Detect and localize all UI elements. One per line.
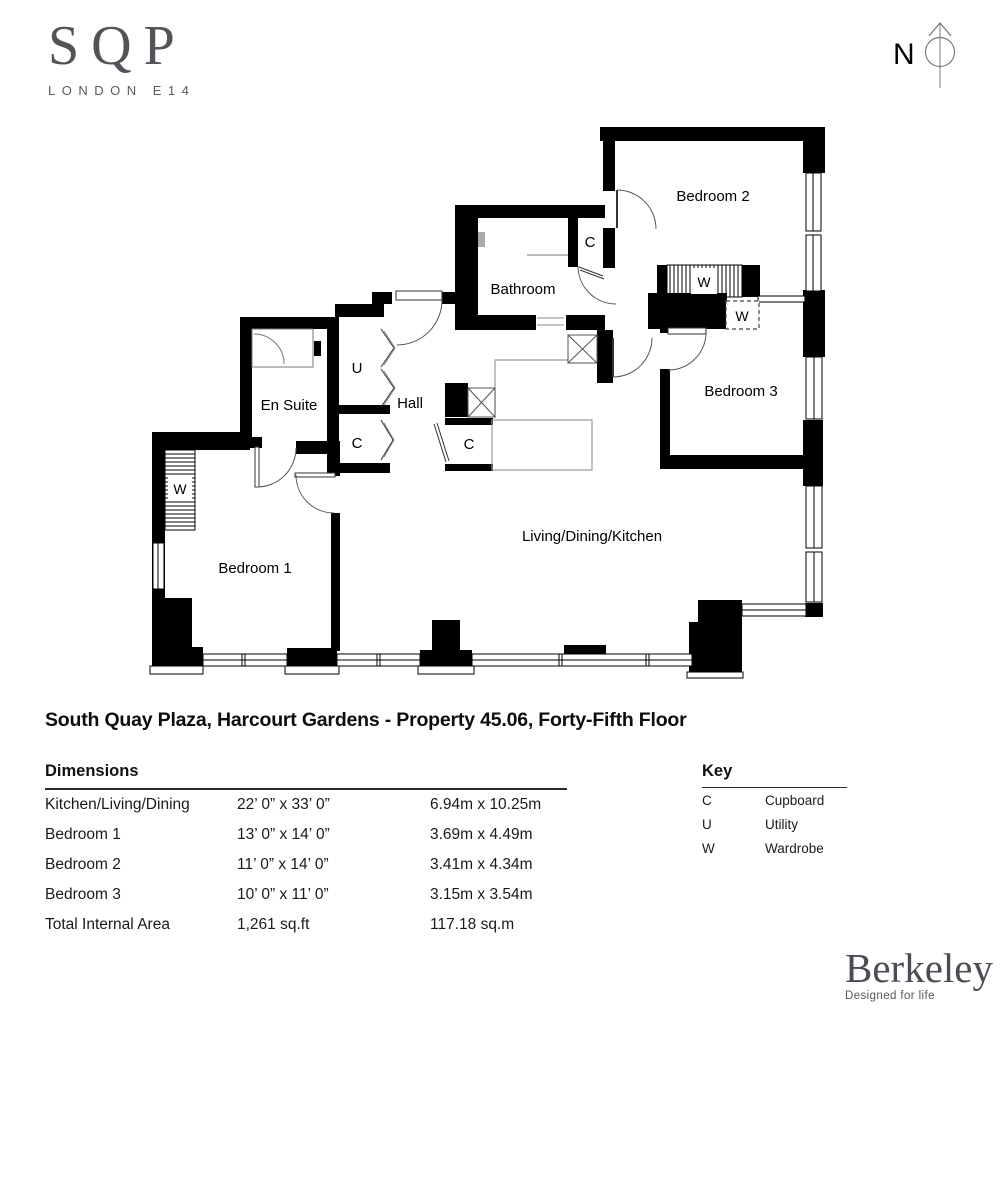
appliance-box [468,335,597,417]
dim-metric: 3.15m x 3.54m [430,886,567,904]
table-row: Bedroom 3 10’ 0” x 11’ 0” 3.15m x 3.54m [45,880,567,910]
cupboard-label: C [585,234,596,251]
wardrobe-bedroom3: W [726,301,759,329]
room-label-hall: Hall [397,395,423,412]
bathroom-niche [478,232,485,247]
key-table: Key C Cupboard U Utility W Wardrobe [702,762,847,860]
room-label-living-dining-kitchen: Living/Dining/Kitchen [522,528,662,545]
room-label-bedroom-2: Bedroom 2 [676,188,749,205]
dim-metric: 6.94m x 10.25m [430,796,567,814]
shower-enclosure [252,329,313,367]
key-meaning: Wardrobe [765,841,847,856]
table-row: Bedroom 2 11’ 0” x 14’ 0” 3.41m x 4.34m [45,850,567,880]
thin-walls [758,296,805,302]
wardrobe-bedroom2: W [667,265,742,297]
dim-imperial: 13’ 0” x 14’ 0” [237,826,430,844]
utility-label: U [352,360,363,377]
wardrobe-label: W [697,274,711,290]
developer-name: Berkeley [845,948,993,989]
table-row: Bedroom 1 13’ 0” x 14’ 0” 3.69m x 4.49m [45,820,567,850]
key-symbol: C [702,793,765,808]
page-title: South Quay Plaza, Harcourt Gardens - Pro… [45,709,965,732]
berkeley-logo: Berkeley Designed for life [845,948,993,1002]
north-arrow-icon: N [893,23,955,88]
room-label-bedroom-3: Bedroom 3 [704,383,777,400]
dimensions-table: Dimensions Kitchen/Living/Dining 22’ 0” … [45,762,567,940]
wardrobe-label: W [735,308,749,324]
dim-imperial: 11’ 0” x 14’ 0” [237,856,430,874]
list-item: W Wardrobe [702,836,847,860]
dim-label: Bedroom 3 [45,886,237,904]
dim-imperial: 1,261 sq.ft [237,916,430,934]
dim-label: Kitchen/Living/Dining [45,796,237,814]
table-row: Total Internal Area 1,261 sq.ft 117.18 s… [45,910,567,940]
key-meaning: Cupboard [765,793,847,808]
room-labels: Bedroom 2 Bathroom Bedroom 3 En Suite Ha… [218,188,777,577]
dim-metric: 117.18 sq.m [430,916,567,934]
wardrobe-label: W [173,481,187,497]
developer-tagline: Designed for life [845,990,993,1002]
dim-imperial: 22’ 0” x 33’ 0” [237,796,430,814]
dimensions-heading: Dimensions [45,762,567,790]
room-label-bedroom-1: Bedroom 1 [218,560,291,577]
list-item: U Utility [702,812,847,836]
dim-imperial: 10’ 0” x 11’ 0” [237,886,430,904]
key-symbol: U [702,817,765,832]
room-label-bathroom: Bathroom [490,281,555,298]
wardrobe-bedroom1: W [165,449,195,530]
list-item: C Cupboard [702,788,847,812]
floorplan-page: SQP LONDON E14 N [0,0,1000,1180]
kitchen-counter [492,360,592,470]
dim-label: Total Internal Area [45,916,237,934]
table-row: Kitchen/Living/Dining 22’ 0” x 33’ 0” 6.… [45,790,567,820]
dim-label: Bedroom 2 [45,856,237,874]
dim-label: Bedroom 1 [45,826,237,844]
key-meaning: Utility [765,817,847,832]
dim-metric: 3.69m x 4.49m [430,826,567,844]
room-label-en-suite: En Suite [261,397,318,414]
cupboard-label: C [352,435,363,452]
key-heading: Key [702,762,847,788]
cupboard-label: C [464,436,475,453]
north-label: N [893,38,915,71]
key-symbol: W [702,841,765,856]
dim-metric: 3.41m x 4.34m [430,856,567,874]
floor-plan: N [0,0,1000,700]
